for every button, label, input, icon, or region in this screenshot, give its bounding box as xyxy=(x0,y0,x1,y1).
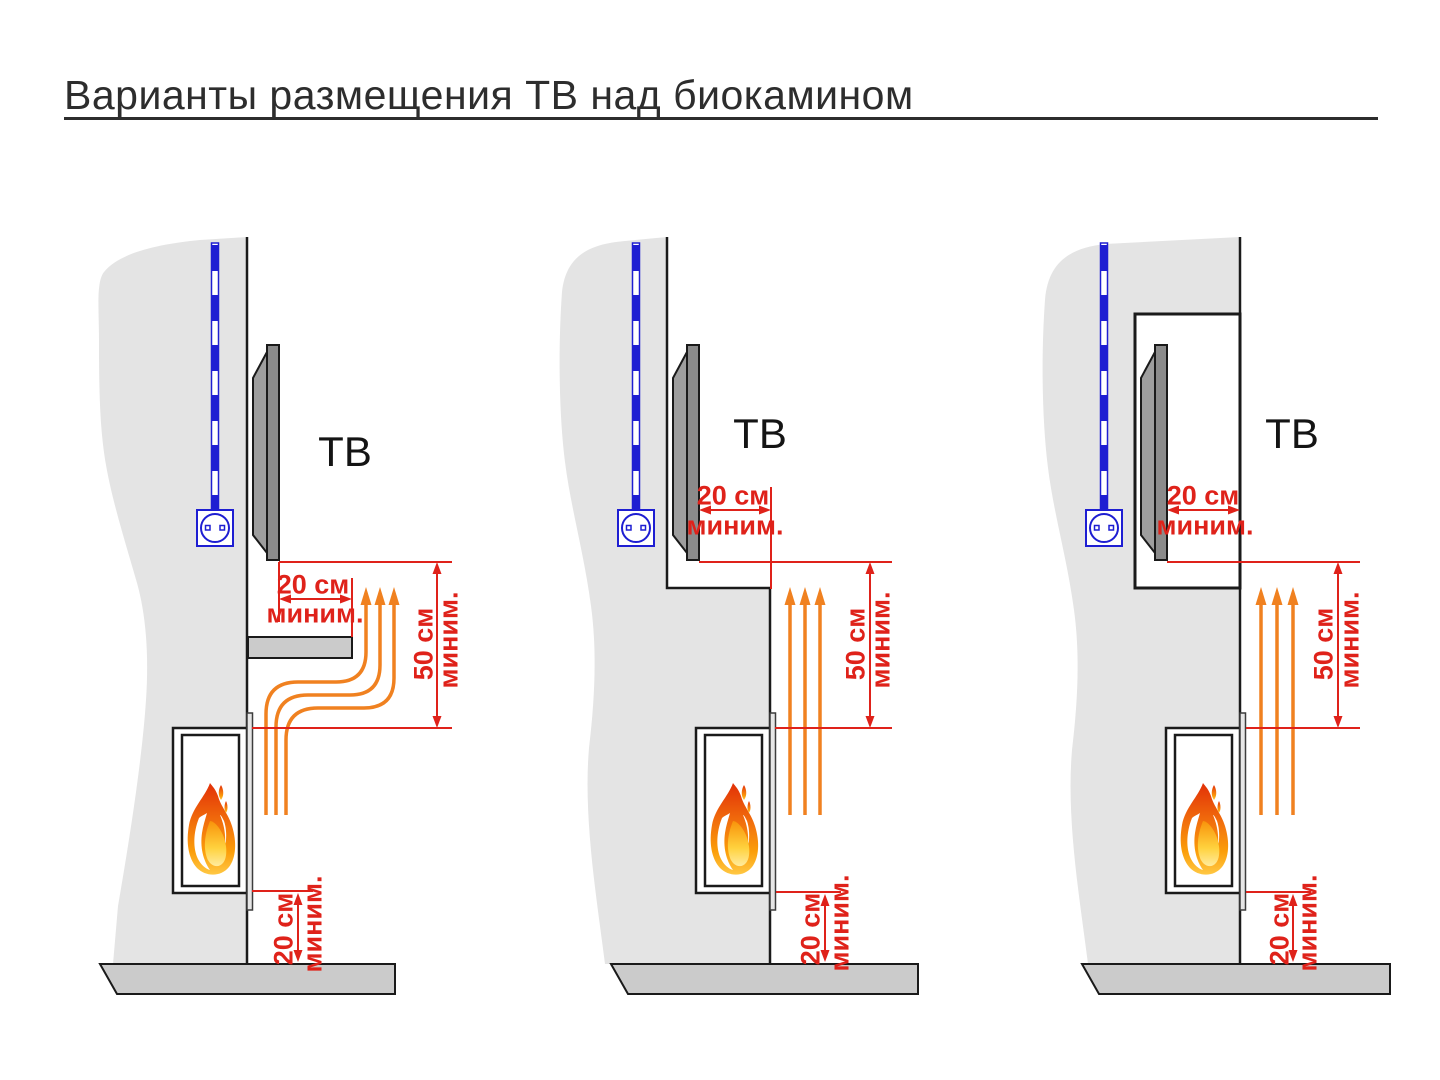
tv-gap-value: 20 см xyxy=(697,483,770,510)
mounting-shelf xyxy=(248,637,352,658)
floor-slab xyxy=(100,964,395,994)
heat-flow-arrows xyxy=(1256,587,1299,815)
tv-gap-value: 20 см xyxy=(277,572,350,599)
floor-clearance-qualifier: миним. xyxy=(827,875,854,972)
floor-clearance-value: 20 см xyxy=(1267,893,1294,966)
floor-clearance-qualifier: миним. xyxy=(1295,875,1322,972)
heat-clearance-value: 50 см xyxy=(1311,608,1338,681)
infographic-canvas: Варианты размещения ТВ над биокамином xyxy=(0,0,1440,1080)
floor-clearance-value: 20 см xyxy=(798,893,825,966)
floor-slab xyxy=(611,964,918,994)
tv-label: ТВ xyxy=(733,413,787,455)
tv-label: ТВ xyxy=(1265,413,1319,455)
heat-flow-arrows xyxy=(785,587,826,815)
tv-gap-qualifier: миним. xyxy=(687,513,784,540)
tv-label: ТВ xyxy=(318,431,372,473)
floor-clearance-qualifier: миним. xyxy=(300,876,327,973)
tv-gap-value: 20 см xyxy=(1167,483,1240,510)
heat-clearance-qualifier: миним. xyxy=(868,592,895,689)
tv-gap-qualifier: миним. xyxy=(1157,513,1254,540)
floor-slab xyxy=(1082,964,1390,994)
tv-gap-qualifier: миним. xyxy=(267,601,364,628)
heat-clearance-qualifier: миним. xyxy=(436,592,463,689)
floor-clearance-value: 20 см xyxy=(271,893,298,966)
heat-clearance-qualifier: миним. xyxy=(1337,592,1364,689)
